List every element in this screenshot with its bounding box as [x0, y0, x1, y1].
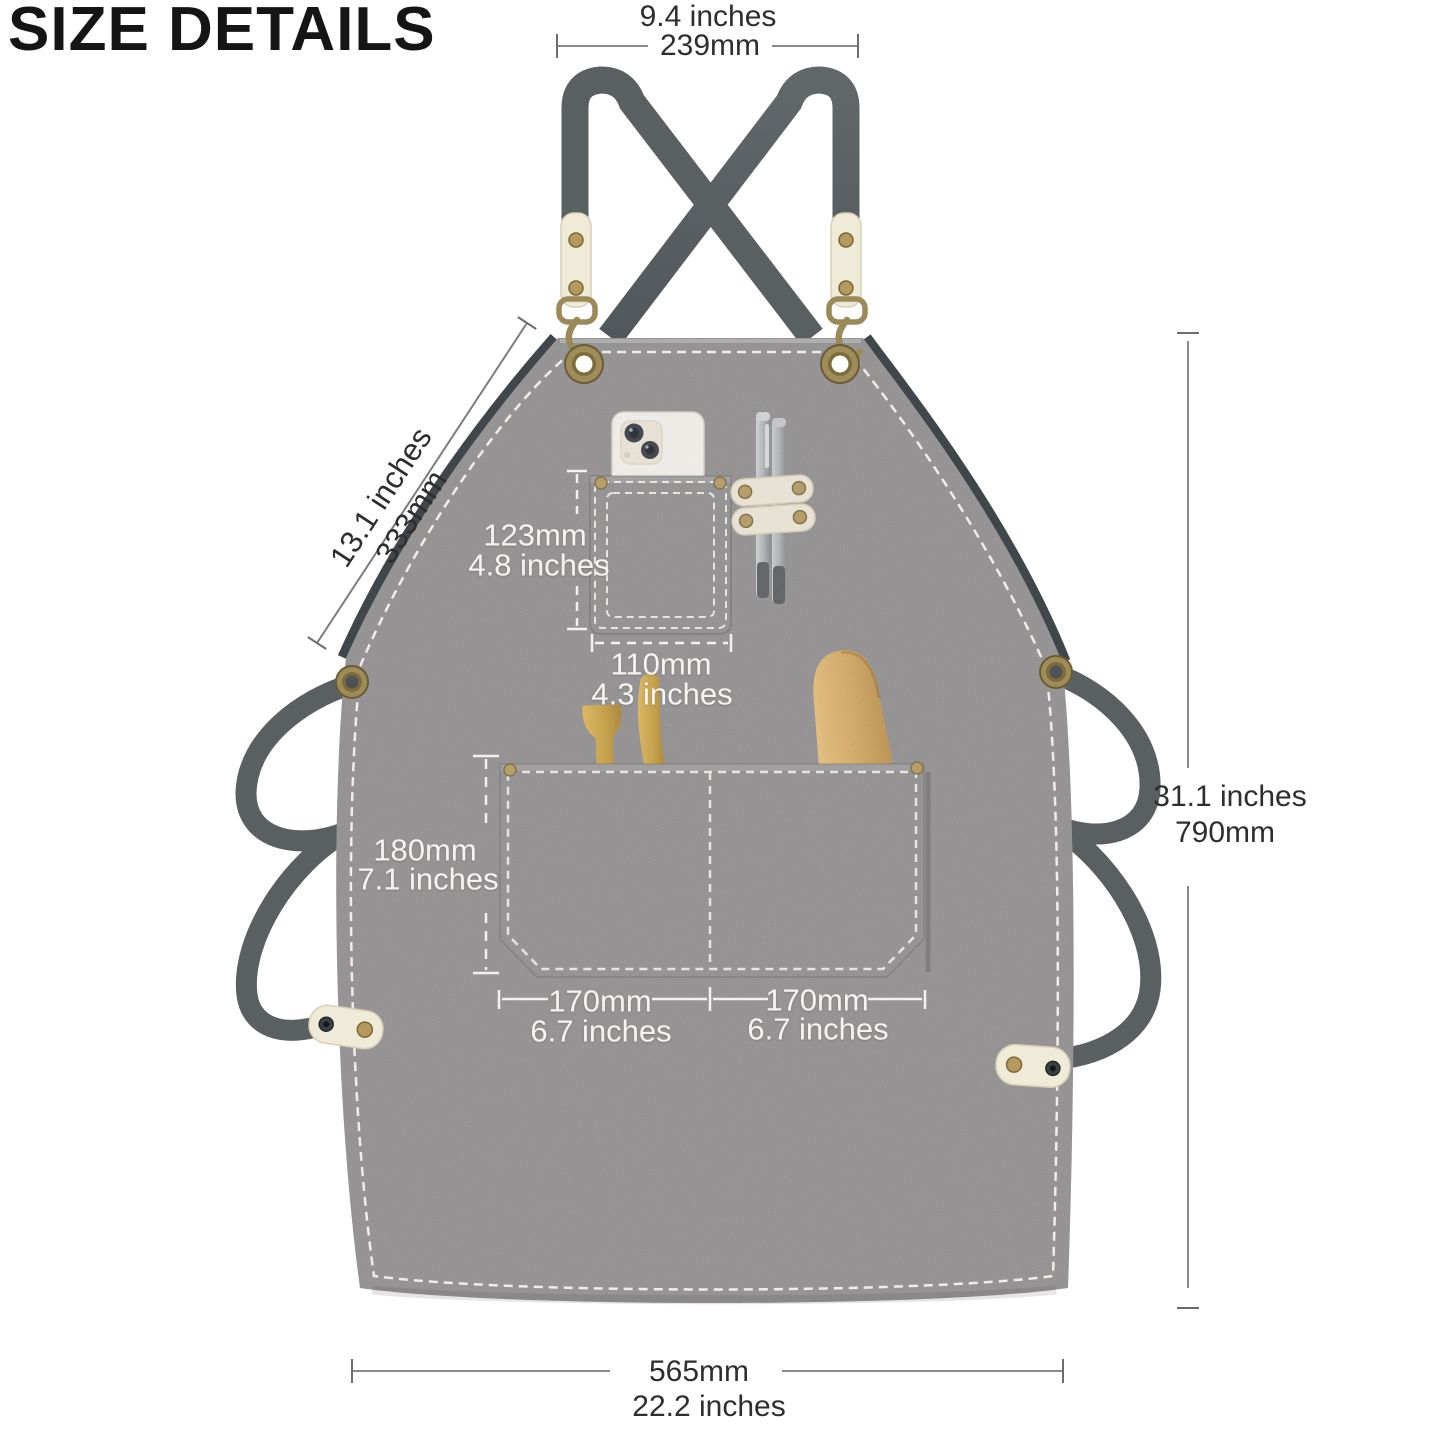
label-bottom-width-mm: 565mm: [649, 1357, 749, 1387]
label-bottom-width-inches: 22.2 inches: [632, 1392, 785, 1422]
label-top-width-mm: 239mm: [660, 31, 760, 61]
neck-straps: [575, 80, 846, 337]
label-pocket-right-width-inches: 6.7 inches: [747, 1014, 888, 1045]
label-chest-pocket-height-mm: 123mm: [483, 520, 586, 551]
label-top-width-inches: 9.4 inches: [640, 2, 777, 32]
label-chest-pocket-width-inches: 4.3 inches: [591, 679, 732, 710]
apron-illustration: [0, 0, 1451, 1432]
size-details-page: SIZE DETAILS 9.4 inches 239mm 13.1 inche…: [0, 0, 1451, 1432]
label-pocket-left-width-inches: 6.7 inches: [530, 1016, 671, 1047]
waist-strap-tip-right: [995, 1043, 1072, 1088]
label-main-pocket-height-inches: 7.1 inches: [357, 864, 498, 895]
label-overall-height-inches: 31.1 inches: [1153, 782, 1306, 812]
waist-strap-left: [246, 684, 352, 1030]
page-title: SIZE DETAILS: [8, 0, 436, 65]
label-overall-height-mm: 790mm: [1175, 818, 1275, 848]
strap-connector-right: [829, 213, 865, 355]
strap-connector-left: [559, 213, 595, 355]
grommet-top-left: [565, 345, 603, 383]
label-chest-pocket-height-inches: 4.8 inches: [468, 550, 609, 581]
label-pocket-left-width-mm: 170mm: [548, 986, 651, 1017]
grommet-side-right: [1040, 656, 1072, 688]
label-chest-pocket-width-mm: 110mm: [610, 649, 711, 680]
grommet-side-left: [336, 666, 368, 698]
grommet-top-right: [821, 345, 859, 383]
